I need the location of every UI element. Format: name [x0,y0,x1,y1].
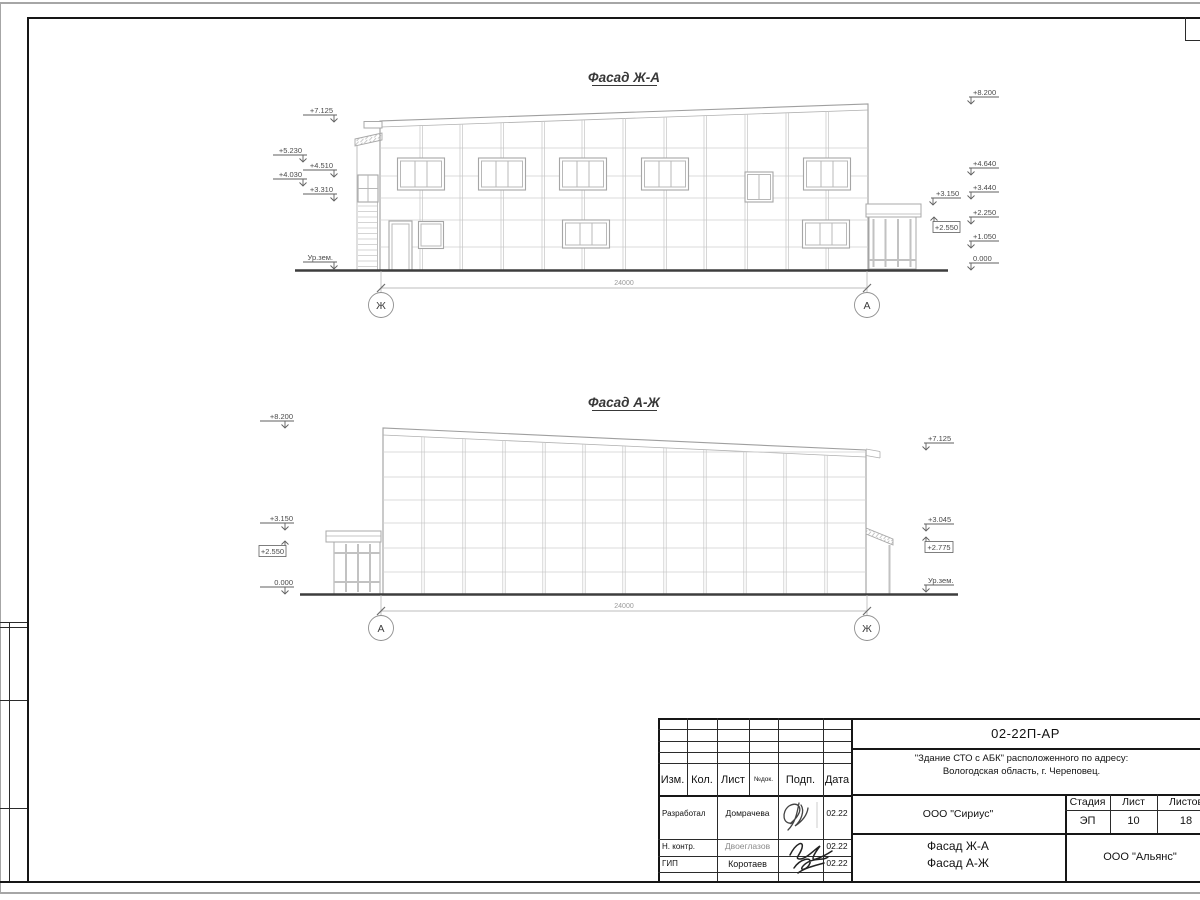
svg-text:+2.250: +2.250 [973,208,996,217]
titleblock-line [851,748,1200,750]
svg-text:+4.510: +4.510 [310,161,333,170]
side-canopy [866,528,893,594]
svg-text:+2.550: +2.550 [261,547,284,556]
svg-text:+8.200: +8.200 [973,88,996,97]
entrance-porch [326,531,381,594]
elevation-mark: +8.200 [260,412,294,428]
svg-text:+4.030: +4.030 [279,170,302,179]
window [398,158,445,190]
building-outline [383,428,866,595]
elevation-mark: +7.125 [923,434,955,450]
svg-text:0.000: 0.000 [274,578,293,587]
window-small [745,172,773,202]
svg-text:+4.640: +4.640 [973,159,996,168]
elevation-mark: +1.050 [968,232,1000,248]
project-name-line2: Вологодская область, г. Череповец. [853,766,1190,778]
sheets-label: Листов [1157,795,1200,809]
elevation-mark-boxed: +2.550 [259,541,289,557]
stair-tower [355,133,382,270]
axis-bubble-left: А [369,616,394,641]
window-small-lower [419,222,444,249]
customer-org: ООО "Альянс" [1065,848,1200,866]
svg-text:+3.150: +3.150 [936,189,959,198]
svg-text:+8.200: +8.200 [270,412,293,421]
ground-level-mark: Ур.зем. [303,253,338,269]
svg-text:+7.125: +7.125 [928,434,951,443]
window [642,158,689,190]
titleblock-line [717,718,718,881]
roof-eaves [866,449,880,458]
elevation-mark: +7.125 [303,106,338,122]
svg-text:+2.550: +2.550 [935,223,958,232]
axis-label: Ж [376,300,386,312]
sheets-value: 18 [1157,812,1200,830]
axis-bubble-left: Ж [369,292,394,318]
facade-a-zh: Фасад А-Ж [259,395,958,641]
elevation-mark: +3.150 [260,514,294,530]
role-name: Коротаев [717,858,778,870]
role-label: Разработал [662,808,706,820]
role-label: ГИП [662,858,678,870]
svg-text:+3.150: +3.150 [270,514,293,523]
role-label: Н. контр. [662,841,695,853]
role-name: Домрачева [717,808,778,820]
elevation-mark: +3.045 [923,515,955,531]
svg-text:+3.310: +3.310 [310,185,333,194]
sheet-label: Лист [1110,795,1157,809]
project-name-line1: "Здание СТО с АБК" расположенного по адр… [853,753,1190,765]
stage-value: ЭП [1065,812,1110,830]
facade-title: Фасад Ж-А [588,70,660,85]
col-header-list: Лист [717,766,749,794]
porch-canopy [866,204,921,217]
tower-canopy [355,133,382,146]
elevation-mark: +5.230 [273,146,307,162]
col-header-ndok: №док. [749,766,778,794]
titleblock-line [851,833,1200,835]
titleblock-line [1065,810,1200,811]
porch-canopy [326,531,381,542]
elevation-mark-boxed: +2.550 [931,217,961,233]
sheet-title-line2: Фасад А-Ж [851,857,1065,871]
facade-drawings: Фасад Ж-А [0,0,1200,900]
parapet-step [364,122,382,129]
entrance-door [389,221,412,270]
axis-bubble-right: Ж [855,616,880,641]
svg-text:+7.125: +7.125 [310,106,333,115]
designer-org: ООО "Сириус" [851,806,1065,822]
elevation-mark: +4.510 [303,161,338,177]
dimension-label: 24000 [614,603,634,610]
elevation-mark: +8.200 [968,88,1000,104]
svg-text:+5.230: +5.230 [279,146,302,155]
window [563,220,610,248]
axis-label: А [377,623,384,635]
dimension-label: 24000 [614,280,634,287]
elevation-mark: +2.250 [968,208,1000,224]
elevation-mark: +4.030 [273,170,307,186]
entrance-porch [866,204,921,269]
drawing-sheet: Фасад Ж-А [0,0,1200,900]
elevation-marks-right: +7.125 +3.045 +2.775 Ур.зем. [923,434,955,592]
facade-title: Фасад А-Ж [588,395,661,410]
svg-text:Ур.зем.: Ур.зем. [928,576,953,585]
svg-text:+3.440: +3.440 [973,183,996,192]
axis-label: Ж [862,623,872,635]
ground-level-mark: Ур.зем. [923,576,955,592]
axis-label: А [863,300,870,312]
window [804,158,851,190]
doc-code: 02-22П-АР [851,723,1200,745]
building-outline [380,104,868,271]
elevation-mark-boxed: +2.775 [923,537,954,553]
window [479,158,526,190]
sheet-title-line1: Фасад Ж-А [851,840,1065,854]
col-header-data: Дата [823,766,851,794]
col-header-kol: Кол. [687,766,717,794]
svg-text:+3.045: +3.045 [928,515,951,524]
svg-text:+1.050: +1.050 [973,232,996,241]
elevation-mark: +3.150 [930,189,962,205]
facade-zh-a: Фасад Ж-А [273,70,999,318]
svg-text:0.000: 0.000 [973,254,992,263]
signatures [770,795,860,885]
elevation-mark: +3.310 [303,185,338,201]
elevation-mark: 0.000 [968,254,1000,270]
sheet-value: 10 [1110,812,1157,830]
svg-text:Ур.зем.: Ур.зем. [308,253,333,262]
signature-nkontr-gip [790,844,832,873]
col-header-podp: Подп. [778,766,823,794]
signature-razrabotal [784,803,808,830]
elevation-mark: +3.440 [968,183,1000,199]
window [803,220,850,248]
elevation-marks-left: +8.200 +3.150 +2.550 0.000 [259,412,294,594]
role-name: Двоеглазов [717,841,778,853]
stair-steps [358,206,377,267]
col-header-izm: Изм. [658,766,687,794]
titleblock-line [658,718,1200,720]
elevation-mark: +4.640 [968,159,1000,175]
dimension-24000: 24000 [377,595,871,615]
window [560,158,607,190]
elevation-mark: 0.000 [260,578,294,594]
elevation-marks-right: +8.200 +4.640 +3.440 +3.150 +2.250 +2.55… [930,88,1000,270]
stage-label: Стадия [1065,795,1110,809]
elevation-marks-left: +7.125 +5.230 +4.510 +4.030 +3.310 Ур.зе… [273,106,338,269]
svg-text:+2.775: +2.775 [927,543,950,552]
dimension-24000: 24000 [377,271,871,292]
axis-bubble-right: А [855,293,880,318]
